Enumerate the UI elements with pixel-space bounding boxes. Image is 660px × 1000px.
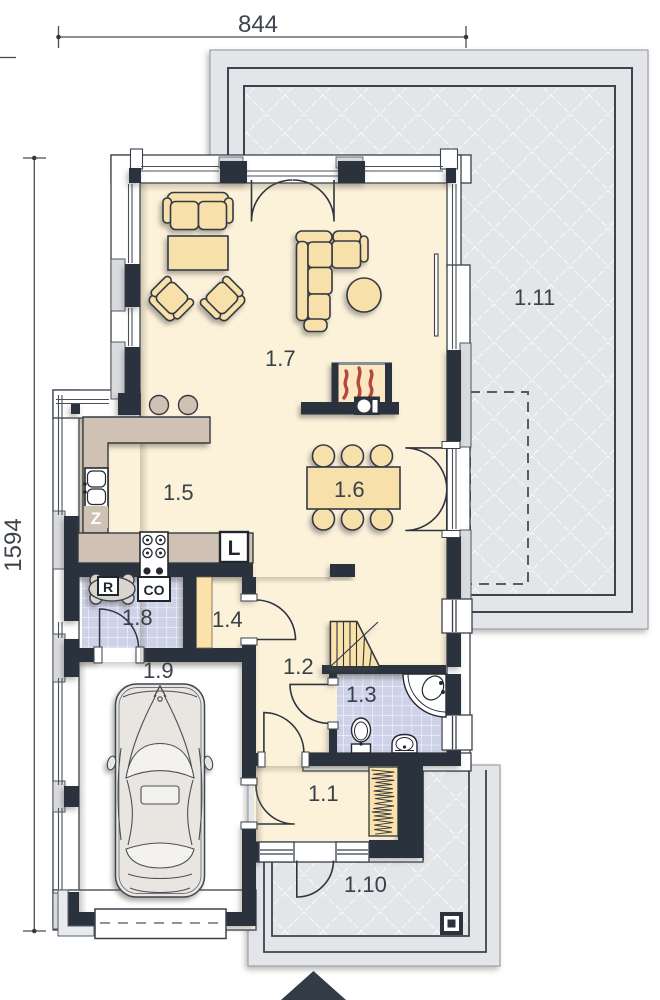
svg-text:1.3: 1.3	[346, 682, 377, 707]
svg-text:Z: Z	[91, 509, 101, 528]
svg-text:1.9: 1.9	[143, 658, 174, 683]
svg-text:L: L	[228, 537, 241, 560]
svg-text:R: R	[103, 579, 113, 595]
svg-text:1594: 1594	[0, 518, 27, 571]
svg-text:1.4: 1.4	[212, 607, 243, 632]
svg-text:1.6: 1.6	[334, 477, 365, 502]
svg-text:1.5: 1.5	[163, 480, 194, 505]
svg-text:1.2: 1.2	[283, 654, 314, 679]
svg-text:1.7: 1.7	[265, 346, 296, 371]
svg-text:CO: CO	[144, 582, 165, 598]
svg-text:844: 844	[238, 11, 278, 38]
svg-text:1.10: 1.10	[344, 872, 387, 897]
svg-text:1.8: 1.8	[122, 605, 153, 630]
svg-text:1.11: 1.11	[514, 285, 555, 310]
svg-text:1.1: 1.1	[308, 781, 339, 806]
